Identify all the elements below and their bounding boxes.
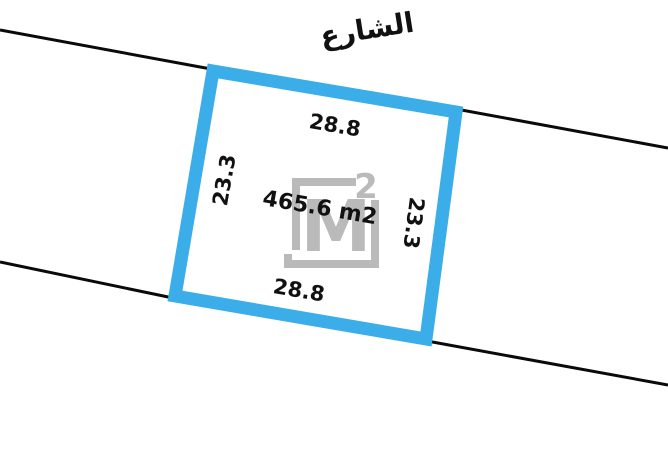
plot-diagram-svg: M 2 الشارع 28.8 28.8 23.3 23.3 465.6 m2 [0,0,668,452]
street-line-top-left-segment [0,30,211,69]
watermark-exponent-2: 2 [354,167,378,207]
street-line-top-right-segment [456,109,668,148]
street-label: الشارع [318,6,416,53]
plot-diagram: M 2 الشارع 28.8 28.8 23.3 23.3 465.6 m2 [0,0,668,452]
street-line-bottom-left-segment [0,262,173,298]
street-line-bottom-right-segment [427,341,668,385]
